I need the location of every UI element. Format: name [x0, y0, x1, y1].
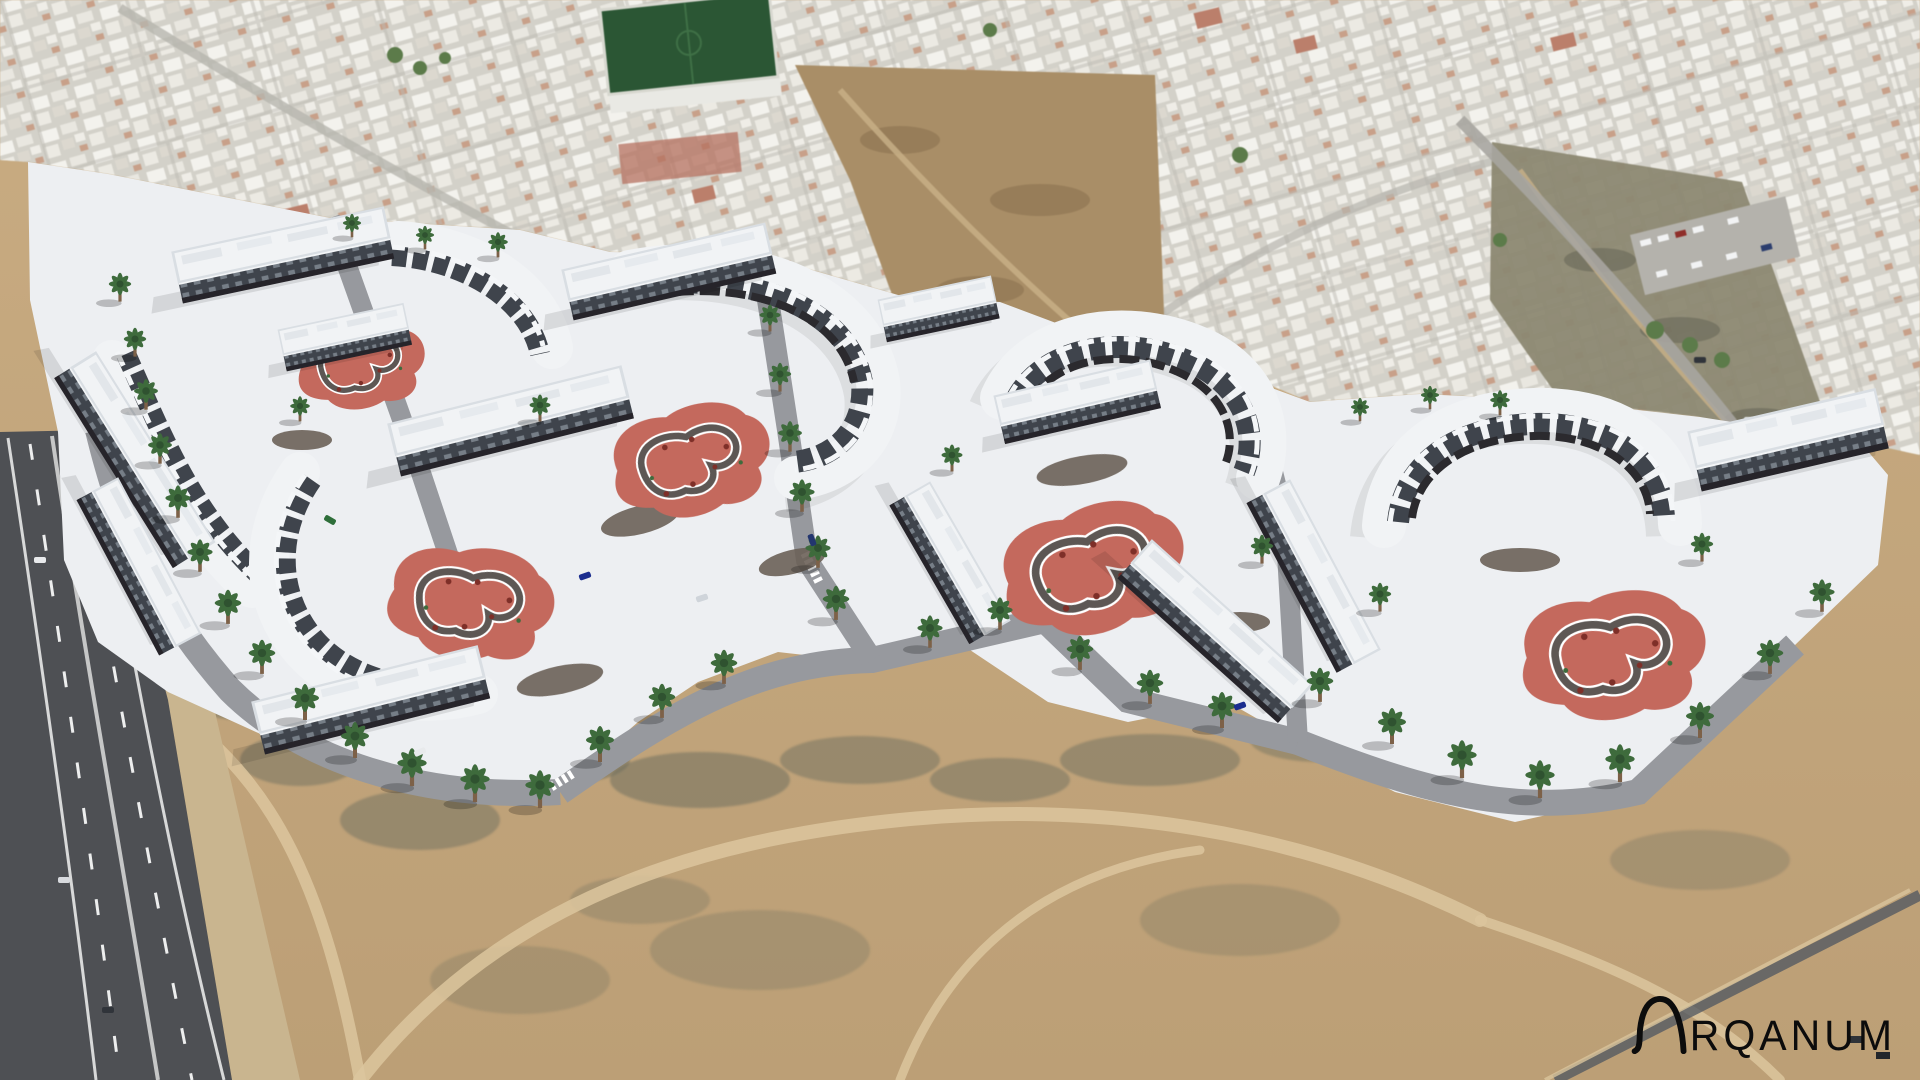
- aerial-scene: [0, 0, 1920, 1080]
- arqanum-arch-icon: [1631, 994, 1689, 1054]
- logo-wordmark: RQANUM: [1690, 1019, 1896, 1054]
- car: [58, 877, 70, 883]
- car: [102, 1007, 114, 1013]
- soccer-field: [600, 0, 782, 113]
- aerial-render-image: RQANUM: [0, 0, 1920, 1080]
- car: [34, 557, 46, 563]
- arqanum-logo: RQANUM: [1631, 994, 1896, 1054]
